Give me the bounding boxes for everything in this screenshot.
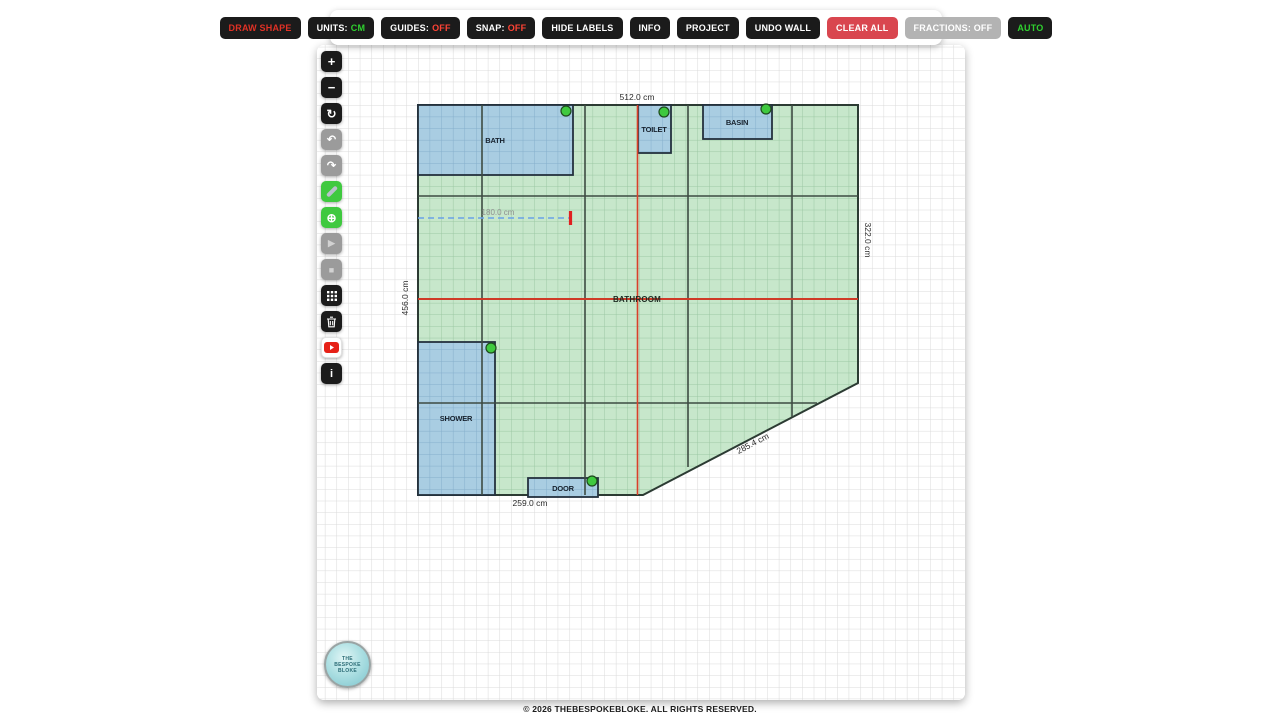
- toilet-handle[interactable]: [659, 107, 669, 117]
- clear-all-button[interactable]: CLEAR ALL: [827, 17, 897, 39]
- copyright-footer: © 2026 THEBESPOKEBLOKE. ALL RIGHTS RESER…: [0, 704, 1280, 714]
- zoom-in-button[interactable]: +: [321, 51, 342, 72]
- zoom-out-button[interactable]: −: [321, 77, 342, 98]
- basin-label: BASIN: [726, 118, 748, 127]
- redo-button[interactable]: ↷: [321, 155, 342, 176]
- draw-shape-button[interactable]: DRAW SHAPE: [220, 17, 301, 39]
- delete-button[interactable]: [321, 311, 342, 332]
- side-toolbar: + − ↻ ↶ ↷ ⊕ ▶ ■: [321, 51, 342, 384]
- shower-handle[interactable]: [486, 343, 496, 353]
- measure-guide-label: 180.0 cm: [482, 208, 515, 217]
- logo-line3: BLOKE: [338, 668, 357, 674]
- info-button[interactable]: INFO: [630, 17, 670, 39]
- brand-logo[interactable]: THE BESPOKE BLOKE: [324, 641, 371, 688]
- app-stage: DRAW SHAPE UNITS: CM GUIDES: OFF SNAP: O…: [0, 0, 1280, 720]
- units-label: UNITS:: [317, 23, 348, 33]
- dimension-bottom: 259.0 cm: [513, 498, 548, 508]
- door-handle[interactable]: [587, 476, 597, 486]
- snap-value: OFF: [508, 23, 527, 33]
- grid-toggle-button[interactable]: [321, 285, 342, 306]
- units-toggle-button[interactable]: UNITS: CM: [308, 17, 375, 39]
- units-value: CM: [351, 23, 365, 33]
- guides-label: GUIDES:: [390, 23, 429, 33]
- play-button[interactable]: ▶: [321, 233, 342, 254]
- room-name-label: BATHROOM: [613, 295, 661, 304]
- drawing-canvas[interactable]: 180.0 cm BATH TOILET BASIN SHOWER DOOR B…: [317, 45, 965, 700]
- auto-button[interactable]: AUTO: [1008, 17, 1052, 39]
- stop-icon: ■: [329, 265, 334, 275]
- play-icon: ▶: [328, 238, 335, 249]
- stop-button[interactable]: ■: [321, 259, 342, 280]
- floorplan-svg: 180.0 cm BATH TOILET BASIN SHOWER DOOR B…: [317, 45, 965, 700]
- draw-tool-button[interactable]: [321, 181, 342, 202]
- youtube-icon: [324, 342, 339, 353]
- grid-icon: [327, 291, 337, 301]
- dimension-right: 322.0 cm: [863, 223, 873, 258]
- trash-icon: [326, 316, 337, 328]
- move-target-button[interactable]: ⊕: [321, 207, 342, 228]
- guides-value: OFF: [432, 23, 451, 33]
- undo-wall-button[interactable]: UNDO WALL: [746, 17, 820, 39]
- shower-label: SHOWER: [440, 414, 473, 423]
- dimension-top: 512.0 cm: [620, 92, 655, 102]
- door-label: DOOR: [552, 484, 574, 493]
- basin-handle[interactable]: [761, 104, 771, 114]
- top-toolbar: DRAW SHAPE UNITS: CM GUIDES: OFF SNAP: O…: [330, 10, 942, 45]
- toilet-label: TOILET: [641, 125, 667, 134]
- undo-button[interactable]: ↶: [321, 129, 342, 150]
- hide-labels-button[interactable]: HIDE LABELS: [542, 17, 622, 39]
- bath-handle[interactable]: [561, 106, 571, 116]
- youtube-button[interactable]: [321, 337, 342, 358]
- rotate-button[interactable]: ↻: [321, 103, 342, 124]
- project-button[interactable]: PROJECT: [677, 17, 739, 39]
- fractions-toggle-button[interactable]: FRACTIONS: OFF: [905, 17, 1002, 39]
- snap-toggle-button[interactable]: SNAP: OFF: [467, 17, 536, 39]
- snap-label: SNAP:: [476, 23, 505, 33]
- pencil-icon: [325, 185, 337, 197]
- about-button[interactable]: i: [321, 363, 342, 384]
- bath-label: BATH: [485, 136, 504, 145]
- guides-toggle-button[interactable]: GUIDES: OFF: [381, 17, 460, 39]
- dimension-left: 456.0 cm: [400, 281, 410, 316]
